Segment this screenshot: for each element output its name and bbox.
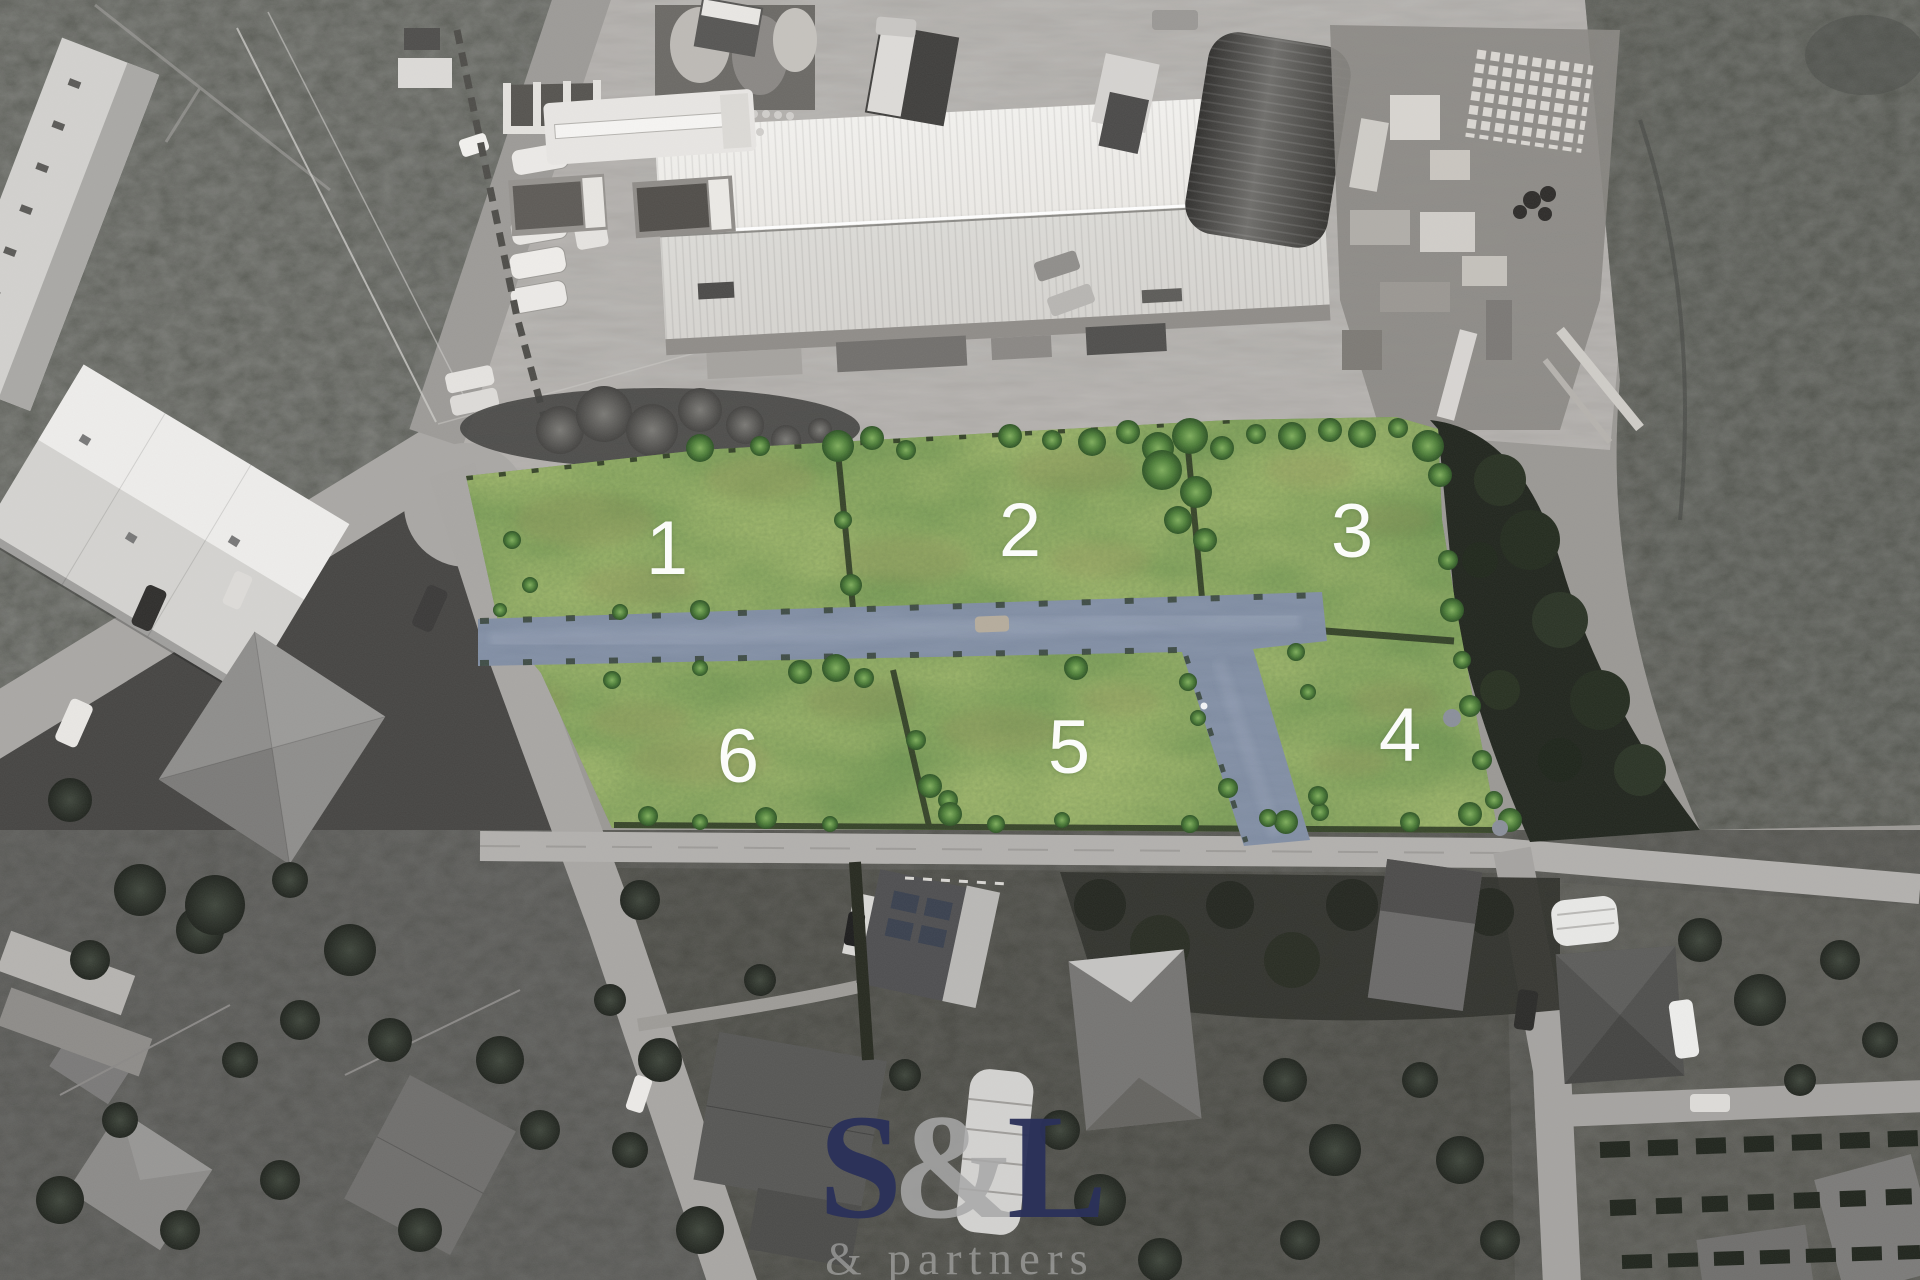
plot-label-4: 4 — [1379, 698, 1421, 774]
plot-label-6: 6 — [717, 719, 759, 795]
plot-label-2: 2 — [999, 493, 1041, 569]
plot-label-3: 3 — [1331, 494, 1373, 570]
photo-grain — [0, 0, 1920, 1280]
aerial-site-plan: 1 2 3 4 5 6 S&L & partners — [0, 0, 1920, 1280]
plot-label-1: 1 — [646, 511, 688, 587]
plot-label-5: 5 — [1048, 710, 1090, 786]
aerial-photo-artwork — [0, 0, 1920, 1280]
